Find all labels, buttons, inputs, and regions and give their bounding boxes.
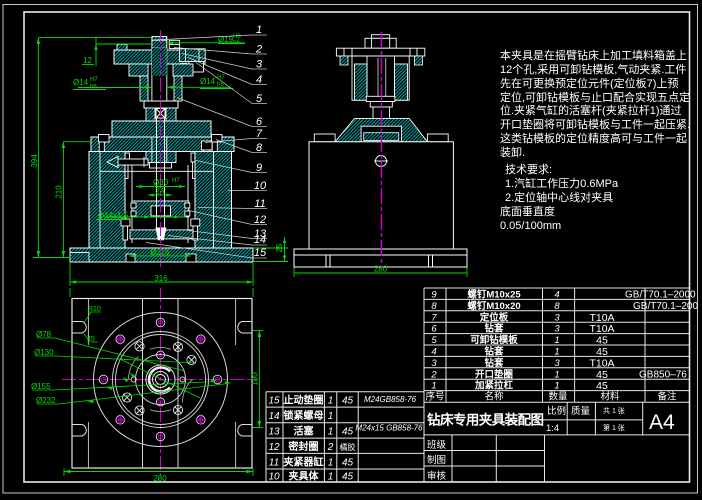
svg-text:螺钉M10x25: 螺钉M10x25 — [467, 289, 521, 301]
svg-text:1: 1 — [328, 411, 334, 422]
svg-text:45: 45 — [342, 427, 354, 438]
svg-text:2: 2 — [327, 442, 334, 453]
svg-text:1: 1 — [328, 427, 334, 438]
svg-text:h6: h6 — [90, 84, 97, 90]
svg-text:质量: 质量 — [571, 405, 591, 417]
svg-text:Ø14: Ø14 — [73, 78, 89, 87]
svg-text:h6: h6 — [233, 40, 240, 46]
svg-text:Φ14x1.5: Φ14x1.5 — [98, 211, 129, 220]
svg-text:序号: 序号 — [425, 391, 444, 403]
svg-text:1:4: 1:4 — [546, 423, 559, 434]
svg-text:1: 1 — [554, 347, 559, 358]
svg-text:280: 280 — [374, 265, 388, 274]
svg-text:45: 45 — [342, 458, 354, 469]
svg-text:位.夹紧气缸的活塞杆(夹紧拉杆1)通过: 位.夹紧气缸的活塞杆(夹紧拉杆1)通过 — [500, 103, 682, 117]
svg-text:可卸钻模板: 可卸钻模板 — [470, 334, 518, 346]
svg-text:45: 45 — [596, 335, 608, 347]
svg-text:这类钻模板的定位精度高可与工件一起: 这类钻模板的定位精度高可与工件一起 — [500, 131, 687, 145]
svg-text:3: 3 — [554, 312, 560, 323]
svg-text:H7: H7 — [172, 178, 180, 184]
svg-text:锁紧螺母: 锁紧螺母 — [284, 409, 324, 422]
svg-text:15: 15 — [254, 247, 267, 259]
svg-text:15: 15 — [268, 396, 280, 407]
svg-text:M24GB858-76: M24GB858-76 — [364, 395, 417, 404]
svg-text:6: 6 — [431, 324, 437, 335]
svg-text:7: 7 — [431, 312, 437, 323]
svg-text:第 1 张: 第 1 张 — [603, 423, 625, 432]
svg-text:Ø14: Ø14 — [200, 77, 216, 86]
svg-text:210: 210 — [55, 185, 64, 199]
svg-text:11: 11 — [269, 458, 279, 469]
svg-text:180: 180 — [251, 372, 260, 386]
svg-text:先在可更换预定位元件(定位板7)上预: 先在可更换预定位元件(定位板7)上预 — [500, 76, 678, 90]
svg-text:材料: 材料 — [600, 391, 620, 403]
svg-text:12: 12 — [268, 442, 280, 453]
svg-text:加紧拉杠: 加紧拉杠 — [474, 380, 514, 392]
svg-text:3: 3 — [431, 358, 437, 369]
svg-text:T10A: T10A — [589, 323, 614, 335]
svg-text:45: 45 — [596, 380, 608, 392]
svg-text:5: 5 — [256, 93, 263, 105]
svg-text:A4: A4 — [649, 411, 675, 434]
svg-text:钻床专用夹具装配图: 钻床专用夹具装配图 — [427, 412, 544, 428]
svg-text:10: 10 — [268, 472, 280, 483]
svg-text:3: 3 — [554, 358, 560, 369]
svg-text:橘胶: 橘胶 — [340, 442, 356, 452]
svg-text:密封圈: 密封圈 — [289, 440, 319, 453]
svg-text:10: 10 — [254, 180, 267, 192]
svg-text:45: 45 — [596, 346, 608, 358]
svg-text:11: 11 — [254, 198, 265, 210]
svg-text:止动垫圈: 止动垫圈 — [284, 394, 324, 407]
svg-text:394: 394 — [30, 154, 39, 168]
svg-text:比例: 比例 — [547, 405, 566, 417]
svg-text:装卸.: 装卸. — [500, 145, 525, 159]
svg-text:316: 316 — [154, 274, 168, 283]
svg-text:Ø116: Ø116 — [151, 248, 171, 257]
svg-text:h6: h6 — [217, 82, 224, 88]
svg-text:夹具体: 夹具体 — [289, 470, 320, 483]
svg-text:14: 14 — [268, 411, 280, 422]
svg-text:1: 1 — [554, 381, 559, 392]
svg-text:1.汽缸工作压力0.6MPa: 1.汽缸工作压力0.6MPa — [505, 176, 619, 190]
svg-text:3: 3 — [554, 324, 560, 335]
svg-text:45: 45 — [342, 396, 354, 407]
svg-text:GB/T70.1–200: GB/T70.1–200 — [633, 301, 698, 312]
svg-text:GB/T70.1–2000: GB/T70.1–2000 — [625, 290, 696, 301]
svg-text:钻套: 钻套 — [484, 357, 504, 369]
svg-text:3: 3 — [256, 59, 263, 71]
svg-text:备注: 备注 — [657, 391, 677, 403]
svg-text:技术要求:: 技术要求: — [505, 163, 552, 176]
svg-text:8: 8 — [431, 301, 437, 312]
svg-text:底面垂直度: 底面垂直度 — [500, 204, 555, 218]
svg-text:定位,可卸钻模板与止口配合实现五点定: 定位,可卸钻模板与止口配合实现五点定 — [500, 90, 690, 104]
svg-text:4: 4 — [256, 74, 262, 86]
svg-text:1: 1 — [431, 381, 436, 392]
svg-text:7: 7 — [256, 128, 263, 140]
svg-text:审核: 审核 — [427, 470, 447, 482]
svg-text:13: 13 — [268, 427, 280, 438]
svg-text:夹紧器缸: 夹紧器缸 — [284, 456, 324, 469]
svg-text:14: 14 — [254, 234, 266, 246]
svg-text:1: 1 — [328, 472, 334, 483]
svg-text:1: 1 — [554, 369, 559, 380]
svg-text:班级: 班级 — [427, 439, 447, 451]
svg-text:1: 1 — [328, 396, 334, 407]
svg-text:开口垫圈: 开口垫圈 — [475, 368, 513, 380]
svg-text:1: 1 — [256, 24, 262, 36]
svg-text:45: 45 — [342, 472, 354, 483]
svg-text:2: 2 — [430, 369, 437, 380]
svg-text:25: 25 — [275, 243, 284, 252]
svg-text:数量: 数量 — [548, 391, 568, 403]
svg-text:钻套: 钻套 — [484, 323, 504, 335]
svg-text:H7: H7 — [217, 75, 225, 81]
svg-text:本夹具是在摇臂钻床上加工填料箱盖上: 本夹具是在摇臂钻床上加工填料箱盖上 — [500, 48, 687, 62]
svg-text:12: 12 — [83, 56, 92, 65]
svg-text:9: 9 — [431, 290, 437, 301]
svg-text:12个孔,采用可卸钻模板,气动夹紧.工件: 12个孔,采用可卸钻模板,气动夹紧.工件 — [500, 62, 686, 76]
svg-text:GB850–76: GB850–76 — [639, 369, 687, 380]
svg-text:5: 5 — [431, 335, 437, 346]
svg-text:M24x15 GB858-76: M24x15 GB858-76 — [355, 424, 423, 433]
svg-text:2.定位轴中心线对夹具: 2.定位轴中心线对夹具 — [505, 190, 613, 204]
svg-text:制图: 制图 — [427, 454, 446, 466]
svg-text:T10A: T10A — [589, 312, 614, 324]
svg-text:定位板: 定位板 — [479, 311, 509, 323]
svg-text:1: 1 — [554, 335, 559, 346]
svg-text:活塞: 活塞 — [294, 425, 315, 438]
svg-text:9: 9 — [256, 162, 262, 174]
svg-text:280: 280 — [153, 474, 167, 483]
svg-text:4: 4 — [554, 290, 559, 301]
svg-text:6: 6 — [256, 116, 263, 128]
svg-text:8: 8 — [554, 301, 560, 312]
svg-text:螺钉M10x20: 螺钉M10x20 — [467, 300, 520, 312]
svg-text:0.05/100mm: 0.05/100mm — [500, 220, 561, 232]
svg-text:8: 8 — [256, 142, 263, 154]
svg-text:4: 4 — [431, 347, 436, 358]
svg-text:45: 45 — [596, 369, 608, 381]
svg-text:钻套: 钻套 — [484, 346, 504, 358]
svg-text:2: 2 — [255, 44, 262, 56]
svg-text:共 1 张: 共 1 张 — [603, 406, 625, 415]
svg-text:12: 12 — [254, 214, 266, 226]
svg-text:T10A: T10A — [589, 357, 614, 369]
svg-text:H7: H7 — [90, 77, 98, 83]
svg-text:开口垫圈将可卸钻模板与工件一起压紧.: 开口垫圈将可卸钻模板与工件一起压紧. — [500, 117, 690, 131]
svg-text:名称: 名称 — [484, 391, 504, 403]
svg-text:1: 1 — [328, 458, 334, 469]
svg-text:24: 24 — [156, 187, 165, 196]
